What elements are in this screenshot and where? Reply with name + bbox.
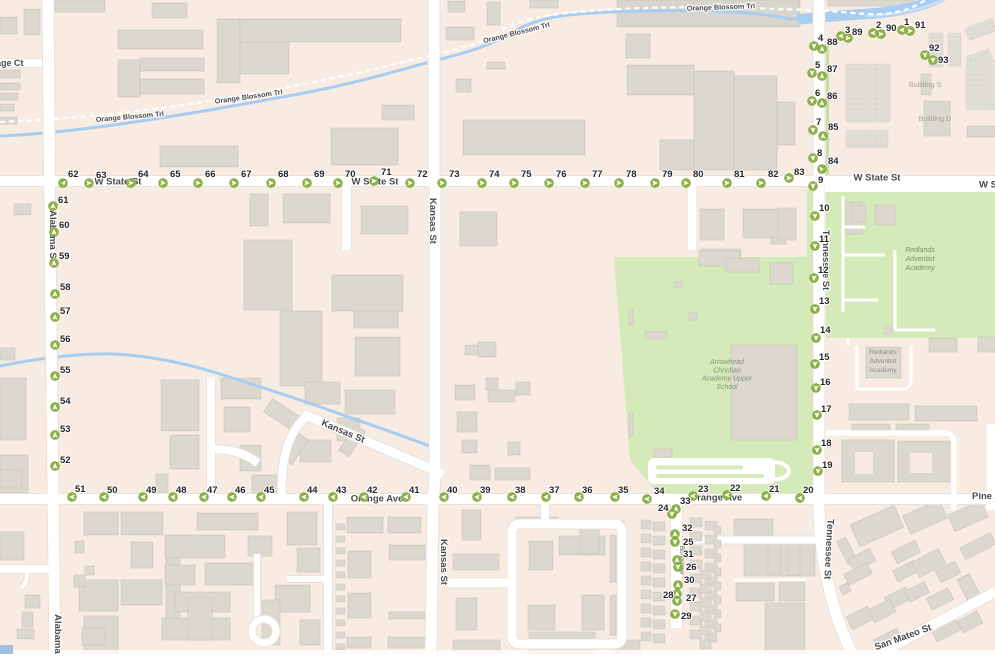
svg-text:54: 54 — [60, 396, 71, 407]
svg-text:80: 80 — [693, 169, 704, 180]
svg-text:51: 51 — [75, 484, 86, 495]
svg-text:21: 21 — [769, 484, 780, 495]
svg-text:35: 35 — [618, 485, 629, 496]
svg-text:57: 57 — [60, 306, 71, 317]
svg-text:86: 86 — [827, 91, 838, 102]
svg-text:33: 33 — [680, 496, 691, 507]
svg-text:11: 11 — [819, 234, 830, 245]
svg-text:55: 55 — [60, 365, 71, 376]
svg-text:73: 73 — [449, 169, 460, 180]
svg-text:50: 50 — [107, 485, 118, 496]
svg-text:91: 91 — [915, 20, 926, 31]
svg-text:2: 2 — [876, 20, 881, 31]
svg-text:90: 90 — [886, 23, 897, 34]
svg-text:15: 15 — [819, 352, 830, 363]
svg-text:24: 24 — [658, 503, 669, 514]
svg-text:88: 88 — [827, 37, 838, 48]
svg-text:34: 34 — [654, 486, 665, 497]
svg-text:42: 42 — [367, 485, 378, 496]
svg-text:12: 12 — [818, 265, 829, 276]
svg-text:72: 72 — [417, 169, 428, 180]
svg-text:W Sta: W Sta — [979, 180, 995, 191]
svg-text:62: 62 — [68, 169, 79, 180]
svg-text:83: 83 — [794, 167, 805, 178]
svg-text:65: 65 — [170, 169, 181, 180]
svg-text:77: 77 — [592, 169, 603, 180]
svg-text:75: 75 — [521, 169, 532, 180]
svg-text:19: 19 — [822, 460, 833, 471]
svg-text:89: 89 — [852, 27, 863, 38]
svg-text:41: 41 — [409, 485, 420, 496]
svg-text:47: 47 — [207, 485, 218, 496]
svg-text:40: 40 — [447, 485, 458, 496]
svg-text:43: 43 — [336, 485, 347, 496]
svg-text:59: 59 — [59, 251, 70, 262]
svg-text:70: 70 — [345, 169, 356, 180]
svg-text:64: 64 — [138, 169, 149, 180]
svg-text:17: 17 — [821, 404, 832, 415]
svg-text:1: 1 — [904, 17, 910, 28]
svg-text:37: 37 — [549, 485, 560, 496]
svg-text:26: 26 — [686, 562, 697, 573]
svg-text:66: 66 — [205, 169, 216, 180]
svg-text:Redlands: Redlands — [905, 247, 935, 254]
svg-text:82: 82 — [768, 169, 779, 180]
svg-text:67: 67 — [241, 169, 252, 180]
svg-text:85: 85 — [828, 122, 839, 133]
svg-text:30: 30 — [684, 575, 695, 586]
svg-text:27: 27 — [686, 593, 697, 604]
svg-text:48: 48 — [176, 485, 187, 496]
svg-text:61: 61 — [58, 195, 69, 206]
svg-text:31: 31 — [683, 549, 694, 560]
svg-text:78: 78 — [626, 169, 637, 180]
svg-text:22: 22 — [730, 483, 741, 494]
svg-text:Academy: Academy — [904, 265, 935, 272]
svg-text:45: 45 — [264, 485, 275, 496]
svg-text:68: 68 — [278, 169, 289, 180]
svg-text:Alabama St: Alabama St — [52, 614, 63, 654]
svg-text:Christian: Christian — [713, 367, 741, 374]
svg-text:Adventist: Adventist — [870, 358, 897, 365]
svg-text:44: 44 — [307, 485, 318, 496]
svg-text:W State St: W State St — [854, 173, 902, 184]
svg-text:38: 38 — [515, 485, 526, 496]
svg-text:9: 9 — [818, 175, 823, 186]
svg-text:81: 81 — [734, 169, 745, 180]
svg-text:5: 5 — [815, 60, 821, 71]
svg-text:Academy Upper: Academy Upper — [701, 376, 753, 383]
svg-text:School: School — [716, 384, 738, 391]
svg-text:56: 56 — [60, 334, 71, 345]
svg-text:Arrowhead: Arrowhead — [709, 359, 745, 366]
svg-text:53: 53 — [60, 424, 71, 435]
svg-text:84: 84 — [828, 156, 839, 167]
svg-text:Kansas St: Kansas St — [427, 198, 438, 245]
svg-text:52: 52 — [60, 455, 71, 466]
svg-text:8: 8 — [817, 148, 822, 159]
svg-text:32: 32 — [682, 523, 693, 534]
svg-text:4: 4 — [818, 33, 824, 44]
svg-text:49: 49 — [146, 485, 157, 496]
svg-text:14: 14 — [820, 325, 831, 336]
svg-text:20: 20 — [803, 485, 814, 496]
svg-text:age Ct: age Ct — [0, 58, 24, 68]
svg-text:76: 76 — [556, 169, 567, 180]
svg-text:60: 60 — [59, 220, 70, 231]
svg-text:93: 93 — [938, 55, 949, 66]
svg-text:7: 7 — [816, 117, 821, 128]
svg-text:Academy: Academy — [869, 367, 897, 374]
svg-text:3: 3 — [845, 25, 850, 36]
svg-text:71: 71 — [381, 167, 392, 178]
svg-text:39: 39 — [480, 485, 491, 496]
svg-text:69: 69 — [314, 169, 325, 180]
svg-text:25: 25 — [683, 537, 694, 548]
svg-text:87: 87 — [827, 64, 838, 75]
svg-text:Adventist: Adventist — [905, 256, 936, 263]
svg-text:92: 92 — [929, 43, 940, 54]
svg-text:Building S: Building S — [909, 80, 942, 89]
svg-text:28: 28 — [663, 590, 674, 601]
svg-text:Pine A: Pine A — [972, 491, 995, 502]
svg-text:Building D: Building D — [919, 114, 952, 123]
svg-text:23: 23 — [698, 484, 709, 495]
svg-text:6: 6 — [815, 88, 820, 99]
svg-text:79: 79 — [662, 169, 673, 180]
svg-text:16: 16 — [820, 377, 831, 388]
svg-text:46: 46 — [235, 485, 246, 496]
svg-text:13: 13 — [819, 296, 830, 307]
svg-text:Kansas St: Kansas St — [438, 539, 449, 586]
svg-text:10: 10 — [819, 203, 830, 214]
svg-text:74: 74 — [489, 169, 500, 180]
svg-text:Redlands: Redlands — [869, 349, 897, 356]
svg-text:63: 63 — [96, 170, 107, 181]
svg-text:36: 36 — [582, 485, 593, 496]
svg-text:58: 58 — [60, 282, 71, 293]
svg-text:18: 18 — [821, 438, 832, 449]
svg-text:29: 29 — [681, 611, 692, 622]
